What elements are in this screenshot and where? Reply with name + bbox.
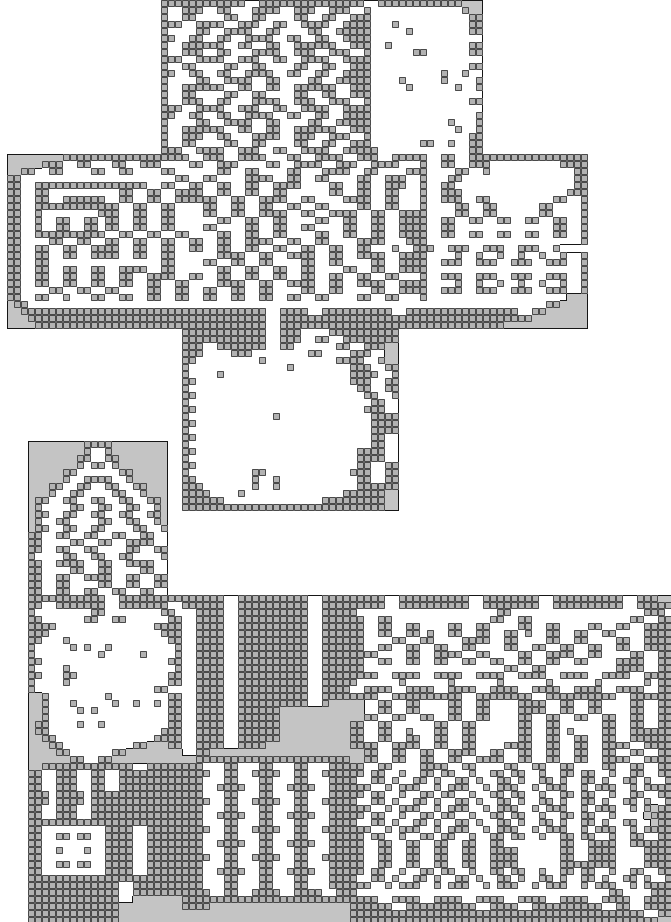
dungeon-map [0, 0, 671, 922]
dungeon-map-canvas[interactable] [0, 0, 671, 922]
